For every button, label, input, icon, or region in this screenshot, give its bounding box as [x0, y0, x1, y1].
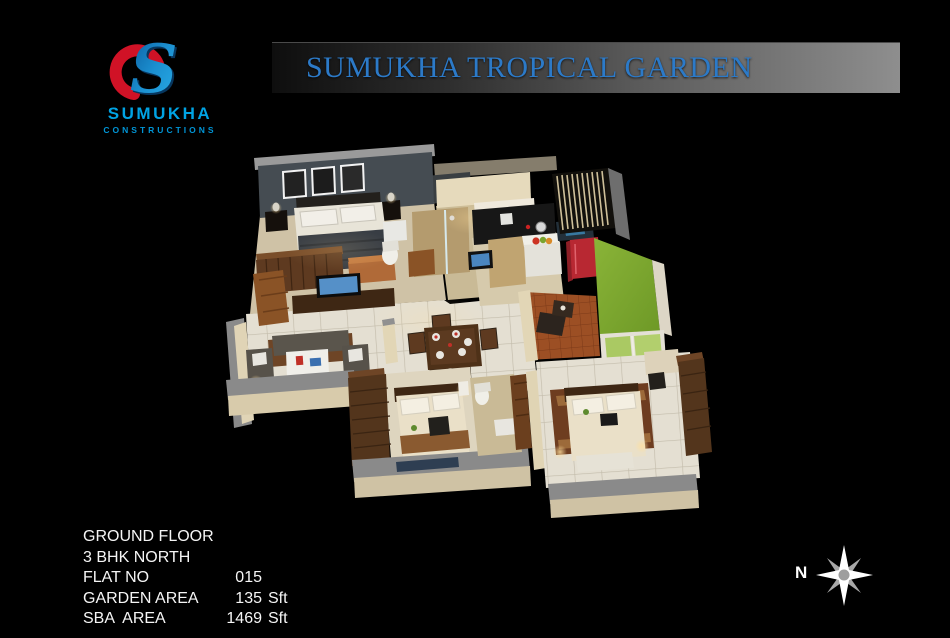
- title-banner: SUMUKHA TROPICAL GARDEN: [272, 42, 900, 93]
- company-logo: S S SUMUKHA CONSTRUCTIONS: [70, 14, 250, 144]
- spec-value: 135: [215, 589, 262, 610]
- spec-value: [215, 527, 262, 548]
- bedroom-3: [536, 349, 712, 518]
- sit-out: [518, 290, 600, 362]
- spec-table: GROUND FLOOR 3 BHK NORTH FLAT NO 015 GAR…: [83, 527, 302, 630]
- garden: [594, 238, 672, 366]
- spec-unit: Sft: [268, 609, 302, 630]
- logo-name: SUMUKHA: [70, 104, 250, 124]
- svg-text:S: S: [130, 30, 178, 108]
- compass-rose-icon: [793, 543, 903, 618]
- poster-canvas: SUMUKHA TROPICAL GARDEN S S SUMUKHA CONS…: [0, 0, 950, 638]
- spec-unit: [268, 527, 302, 548]
- logo-s-mark: S S: [98, 18, 208, 108]
- spec-row-garden-area: GARDEN AREA 135 Sft: [83, 589, 302, 610]
- spec-row-bhk: 3 BHK NORTH: [83, 548, 302, 569]
- compass: N: [793, 543, 903, 618]
- spec-label: GARDEN AREA: [83, 589, 215, 610]
- spec-value: 015: [215, 568, 262, 589]
- spec-unit: Sft: [268, 589, 302, 610]
- spec-row-sba-area: SBA AREA 1469 Sft: [83, 609, 302, 630]
- spec-value: 1469: [215, 609, 262, 630]
- compass-north-label: N: [795, 563, 807, 583]
- spec-label: FLAT NO: [83, 568, 215, 589]
- logo-subtitle: CONSTRUCTIONS: [70, 125, 250, 135]
- spec-unit: [268, 548, 302, 569]
- spec-unit: [268, 568, 302, 589]
- spec-label: SBA AREA: [83, 609, 215, 630]
- spec-row-flat-no: FLAT NO 015: [83, 568, 302, 589]
- project-title: SUMUKHA TROPICAL GARDEN: [306, 51, 753, 85]
- spec-value: [215, 548, 262, 569]
- pergola-louvers: [552, 168, 630, 240]
- spec-row-floor: GROUND FLOOR: [83, 527, 302, 548]
- spec-label: 3 BHK NORTH: [83, 548, 215, 569]
- spec-label: GROUND FLOOR: [83, 527, 215, 548]
